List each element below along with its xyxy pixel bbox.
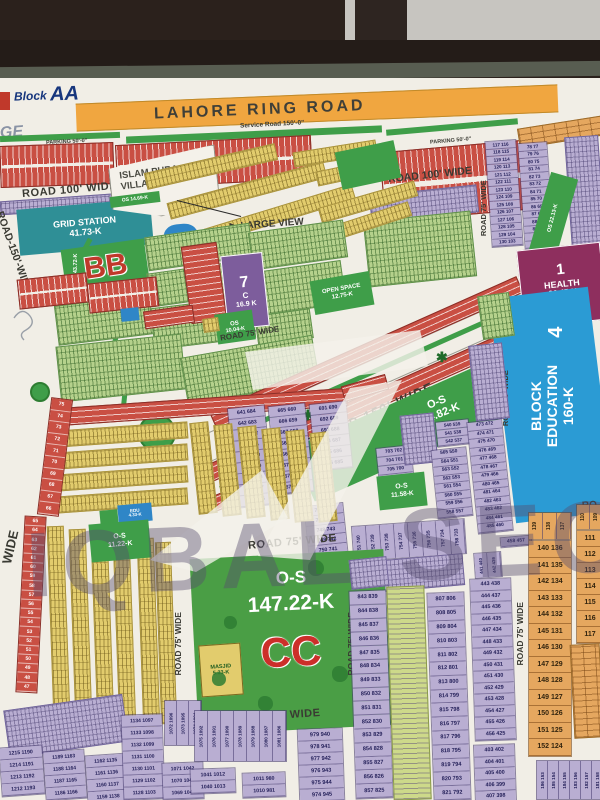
plot-grid: 186 153185 154184 155183 156182 157181 1… [536,760,600,800]
plot-cell: 137 [557,513,571,539]
plot-cell: 110 [577,505,590,529]
plot-cell: 116 [577,611,600,627]
plot-cell: 819 794 [433,758,469,773]
plot-grid: 1215 11901214 11911213 11921212 1193 [0,745,46,798]
plot-cell: 148 128 [529,673,571,690]
block-7-text: 16.9 K [236,299,257,309]
plot-cell: 851 831 [353,701,389,716]
plot-cell: 145 131 [529,624,571,641]
plot-grid: 441 440442 439 [473,551,503,579]
plot-strip-yg [386,585,431,800]
plot-cell: 66 [38,502,59,516]
plot-cell: 1077 1090 [221,711,234,761]
plot-grid: 565 550564 551563 552562 553561 554560 5… [430,446,473,519]
plot-cell: 811 802 [429,648,465,663]
plot-cell: 817 796 [432,730,468,745]
education-label-text: EDUCATION [545,365,561,447]
plot-grid-orange: 110109 [576,504,600,530]
education-label-text: BLOCK [529,381,545,431]
plot-cell: 117 [577,627,600,643]
plot-grid: 1134 10971133 10981132 10991131 11001130… [121,713,166,800]
plot-cell: 813 800 [430,675,466,690]
block-aa-small: Block [14,89,47,104]
tree-icon [224,616,237,629]
plot-cell: 184 155 [559,761,570,799]
plot-grid: 1189 11631188 11641187 11651186 1166 [42,749,87,800]
plot-cell: 142 134 [529,574,571,591]
plot-cell: 848 834 [352,659,388,674]
logo-fragment [0,92,10,110]
plot-grid: 979 940978 941977 942976 943975 944974 9… [297,727,346,800]
plot-strip-yellow [56,443,189,469]
map-paper: LAHORE RING ROAD BlockAAService Road 150… [0,78,600,800]
plot-cell: 186 153 [537,761,548,799]
plot-cell: 815 798 [431,703,467,718]
education-label: BLOCKEDUCATION160-K [515,308,591,504]
plot-cell: 456 425 [475,728,515,741]
plot-grid: 807 806808 805809 804810 803811 802812 8… [426,591,471,800]
masjid-block: MASJID5.33-K [198,643,244,698]
plot-cell: 147 129 [529,657,571,674]
open-space-block: O-S11.58-K [376,472,427,511]
edu-mini-blue [120,307,139,322]
plot-cell: 152 124 [529,739,571,756]
plot-cell: 853 829 [354,728,390,743]
plot-cell: 115 [577,595,600,611]
green-verge [386,118,518,135]
plot-cell: 47 [16,682,36,692]
plot-cell: 854 828 [355,742,391,757]
plot-cell: 855 827 [355,756,391,771]
plot-cell: 113 [577,563,600,579]
plot-cell: 1080 1087 [260,711,273,761]
plot-cell: 846 836 [351,632,387,647]
plot-grid: 403 402404 401405 400406 399407 398 [473,743,517,800]
plot-cell: 808 805 [428,606,464,621]
plot-grid-green [55,334,186,403]
plot-cell: 138 [543,513,557,539]
plot-cell: 407 398 [476,790,516,800]
plot-cell: 818 795 [433,744,469,759]
block-aa-big: AA [50,83,80,106]
health-block-text: 1 [555,262,565,280]
plot-cell: 140 136 [529,541,571,558]
plot-cell: 141 135 [529,558,571,575]
plot-grid: 1011 9801010 981 [242,771,287,799]
plot-cell: 149 127 [529,690,571,707]
plot-grid-orange: 111112113114115116117 [576,530,600,644]
plot-cell: 139 [529,513,543,539]
plot-strip-red-numbers: 65646362616059585756555453525150494847 [15,516,46,694]
plot-cell: 820 793 [434,772,470,787]
plot-cell: 1075 1092 [195,711,208,761]
plot-cell: 1073 1095 [177,701,189,745]
plot-cell: 1072 1096 [165,701,177,745]
plot-cell: 150 126 [529,706,571,723]
plot-cell: 185 154 [548,761,559,799]
plot-cell: 109 [590,505,600,529]
plot-cell: 856 826 [356,770,392,785]
plot-cell: 182 157 [581,761,592,799]
plot-cell: 1078 1089 [234,711,247,761]
cc-label: CC [250,626,332,677]
plot-grid: 443 438444 437445 436446 435447 434448 4… [469,577,517,741]
plot-grid: 1075 10921076 10911077 10901078 10891079… [194,710,287,762]
plot-cell: 847 835 [351,646,387,661]
tree-icon: ✱ [436,350,448,364]
plot-cell: 850 832 [353,687,389,702]
plot-cell: 114 [577,579,600,595]
plot-cell: 821 792 [434,785,470,800]
plot-cell: 810 803 [429,634,465,649]
plot-cell: 1128 1103 [124,786,164,799]
open-space-block-text: 11.58-K [391,490,414,500]
plot-cell: 807 806 [427,592,463,607]
plot-cell: 143 133 [529,591,571,608]
plot-cell: 814 799 [431,689,467,704]
plot-cell: 1076 1091 [208,711,221,761]
plot-cell: 1081 1086 [273,711,286,761]
plot-grid-purple [349,556,390,590]
plot-cell: 442 439 [487,552,502,577]
open-space-mini-text: OS 14.69-K [122,195,149,204]
plot-grid-orange: 140 136141 135142 134143 133144 132145 1… [528,540,572,757]
tree-icon [212,672,226,686]
road-label-vertical: ROAD 75' WIDE [174,599,184,689]
open-space-block-text: 11.22-K [108,540,133,550]
photo-of-map: LAHORE RING ROAD BlockAAService Road 150… [0,0,600,800]
plot-strip-yellow [47,526,71,714]
plot-cell: 809 804 [428,620,464,635]
plot-grid-orange [570,643,600,738]
education-label-text: 160-K [561,387,577,425]
plot-cell: 183 156 [570,761,581,799]
block-7-text: 7 [239,273,250,292]
plot-cell: 849 833 [352,673,388,688]
plot-strip-yellow [69,529,93,720]
masjid-mini [202,317,220,333]
plot-cell: 458 457 [501,536,532,548]
plot-cell: 1212 1193 [2,782,45,797]
plot-cell: 758 733 [450,519,466,554]
plot-cell: 1079 1088 [247,711,260,761]
roundabout-small [30,382,50,402]
edu-block-text: 4.33-K [128,513,142,519]
tree-icon [308,560,324,576]
tree-icon [258,696,273,711]
plot-cell: 816 797 [432,717,468,732]
plot-cell: 857 825 [356,783,392,798]
plot-grid-orange: 139138137 [528,512,572,540]
plot-cell: 843 839 [349,590,385,605]
plot-cell: 974 945 [300,788,344,800]
plot-cell: 111 [577,531,600,547]
plot-grid: 1041 10121040 1013 [190,767,237,795]
open-space-block: O-S11.22-K [88,519,151,562]
plot-cell: 1010 981 [243,784,285,797]
plot-cell: 144 132 [529,607,571,624]
plot-grid-green [477,292,515,340]
plot-cell: 1040 1013 [191,780,235,794]
plot-strip-yellow [56,465,189,491]
plot-cell: 812 801 [430,661,466,676]
plot-cell: 130 103 [492,237,522,247]
plot-cell: 845 837 [350,618,386,633]
plot-cell: 151 125 [529,723,571,740]
ring-road-label: LAHORE RING ROAD [76,97,366,127]
plot-cell: 181 158 [592,761,600,799]
road-label-vertical: ROAD 75' WIDE [516,589,526,679]
plot-cell: 1186 1166 [46,786,87,800]
plot-cell: 844 838 [350,604,386,619]
plot-cell: 852 830 [354,715,390,730]
road-label-vertical: ROAD 75' WIDE [480,163,488,253]
plot-cell: 146 130 [529,640,571,657]
plot-cell: 112 [577,547,600,563]
